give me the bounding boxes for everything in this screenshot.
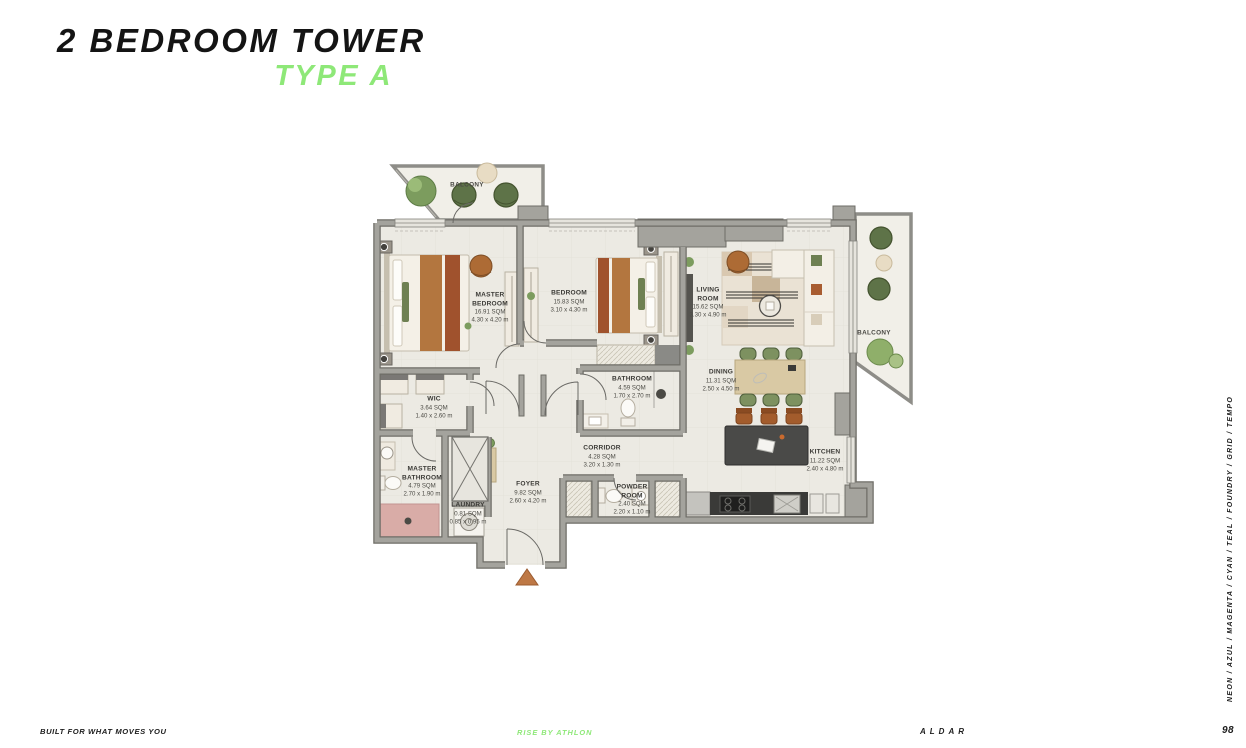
stove [720,496,750,512]
title-block: 2 BEDROOM TOWER TYPE A [57,24,393,93]
elevator-shaft [452,437,488,501]
label-laundry: LAUNDRY 0.81 SQM 0.85 x 0.95 m [450,502,487,527]
entrance-marker [516,569,538,585]
window [395,219,445,227]
label-master-bathroom: MASTER BATHROOM 4.79 SQM 2.70 x 1.90 m [402,465,442,498]
footer-developer: ALDAR [920,727,968,736]
dining-chair [740,394,756,406]
cabinet [810,494,823,513]
label-bathroom: BATHROOM 4.59 SQM 1.70 x 2.70 m [612,376,652,401]
window [787,219,831,227]
toilet [385,477,401,490]
bedroom-closet-dark [655,345,681,366]
balcony-slider [849,241,857,353]
page-subtitle: TYPE A [57,60,393,93]
page-title: 2 BEDROOM TOWER [57,24,393,57]
dining-chair [763,348,779,360]
balcony-table [876,255,892,271]
balcony-chair [494,183,518,207]
label-living-room: LIVING ROOM 15.62 SQM 3.30 x 4.90 m [690,286,727,319]
stool [786,408,802,413]
dining-chair [786,348,802,360]
label-powder-room: POWDER ROOM 2.40 SQM 2.20 x 1.10 m [614,483,651,516]
brochure-page: { "header": { "title": "2 BEDROOM TOWER"… [0,0,1246,748]
lamp-icon [380,243,387,250]
label-wic: WIC 3.64 SQM 1.40 x 2.60 m [416,396,453,421]
label-master-bedroom: MASTER BEDROOM 16.91 SQM 4.30 x 4.20 m [472,291,509,324]
label-bedroom: BEDROOM 15.83 SQM 3.10 x 4.30 m [551,290,588,315]
dining-chair [763,394,779,406]
label-foyer: FOYER 9.82 SQM 2.60 x 4.20 m [510,481,547,506]
dining-set [735,348,805,406]
label-dining: DINING 11.31 SQM 2.50 x 4.50 m [703,369,740,394]
pillow [811,255,822,266]
footer-tagline: BUILT FOR WHAT MOVES YOU [40,727,167,736]
pillow [811,314,822,325]
side-vertical-text: NEON / AZUL / MAGENTA / CYAN / TEAL / FO… [1227,342,1234,702]
balcony-right [855,214,911,402]
dining-chair [786,394,802,406]
window [847,437,855,483]
balcony-chair [868,278,890,300]
lamp-icon [648,337,655,344]
cabinet [826,494,839,513]
balcony-chair [870,227,892,249]
label-corridor: CORRIDOR 4.28 SQM 3.20 x 1.30 m [583,445,621,470]
page-number: 98 [1222,725,1234,736]
shower-drain [656,389,666,399]
stool [786,413,802,424]
label-kitchen: KITCHEN 11.22 SQM 2.40 x 4.80 m [807,449,844,474]
toilet [621,399,635,417]
label-balcony-top: BALCONY [450,171,484,192]
plant-icon [408,178,422,192]
plant-icon [527,292,535,300]
stool [736,413,752,424]
fridge [686,492,710,515]
footer-brand: RISE BY ATHLON [517,728,592,737]
dining-chair [740,348,756,360]
stool [736,408,752,413]
lamp-icon [380,355,387,362]
plant-icon [465,323,472,330]
stool [761,413,777,424]
stool [761,408,777,413]
plant-icon [889,354,903,368]
pillow [811,284,822,295]
floor-plan: MASTER BEDROOM 16.91 SQM 4.30 x 4.20 m B… [368,156,920,602]
shower-drain [405,518,412,525]
sink [381,447,393,459]
window [549,219,635,227]
label-balcony-right: BALCONY [857,319,891,340]
